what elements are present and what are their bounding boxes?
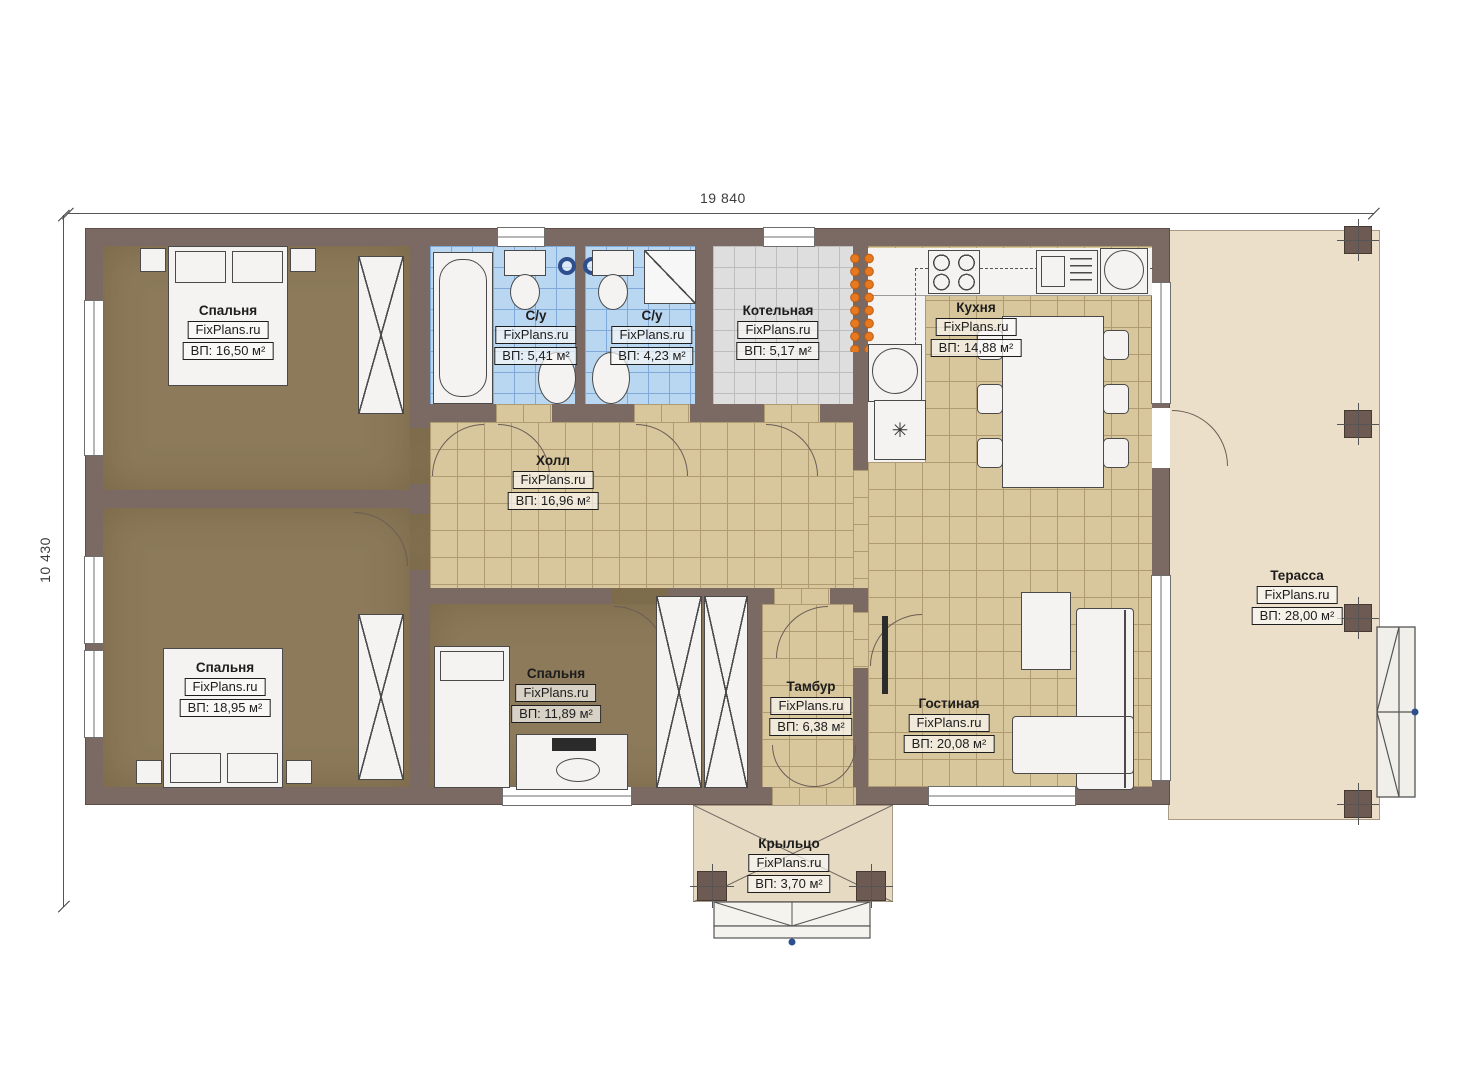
- room-label-porch: Крыльцо FixPlans.ru ВП: 3,70 м²: [747, 836, 830, 893]
- room-name: Тамбур: [769, 679, 852, 694]
- door-opening: [634, 404, 690, 422]
- toilet-tank: [504, 250, 546, 276]
- room-area: ВП: 20,08 м²: [904, 735, 995, 753]
- room-name: Крыльцо: [747, 836, 830, 851]
- window: [84, 556, 104, 644]
- chair: [977, 384, 1003, 414]
- room-label-bedroom2: Спальня FixPlans.ru ВП: 18,95 м²: [180, 660, 271, 717]
- room-name: С/у: [610, 308, 693, 323]
- watermark-label: FixPlans.ru: [908, 714, 989, 732]
- room-area: ВП: 5,41 м²: [494, 347, 577, 365]
- monitor: [552, 738, 596, 751]
- room-area: ВП: 6,38 м²: [769, 718, 852, 736]
- room-label-bedroom1: Спальня FixPlans.ru ВП: 16,50 м²: [183, 303, 274, 360]
- door-opening: [410, 514, 430, 570]
- nightstand: [286, 760, 312, 784]
- room-name: Кухня: [931, 300, 1022, 315]
- terrace-column: [1344, 226, 1372, 254]
- room-area: ВП: 4,23 м²: [610, 347, 693, 365]
- wardrobe: [358, 614, 404, 780]
- watermark-label: FixPlans.ru: [748, 854, 829, 872]
- heating-manifold-dots: [848, 252, 876, 352]
- chair: [1103, 330, 1129, 360]
- room-label-terrace: Терасса FixPlans.ru ВП: 28,00 м²: [1252, 568, 1343, 625]
- wardrobe: [704, 596, 748, 788]
- door-opening: [764, 404, 820, 422]
- porch-column: [856, 871, 886, 901]
- room-name: Котельная: [736, 303, 819, 318]
- room-name: Спальня: [511, 666, 601, 681]
- dimension-width-label: 19 840: [700, 190, 746, 206]
- window: [84, 300, 104, 456]
- room-label-bath1: С/у FixPlans.ru ВП: 5,41 м²: [494, 308, 577, 365]
- terrace-floor: [1168, 230, 1380, 820]
- fridge: ✳: [874, 400, 926, 460]
- passage-opening: [853, 470, 868, 588]
- room-label-bath2: С/у FixPlans.ru ВП: 4,23 м²: [610, 308, 693, 365]
- chair: [1103, 438, 1129, 468]
- door-opening: [853, 612, 868, 668]
- room-label-living: Гостиная FixPlans.ru ВП: 20,08 м²: [904, 696, 995, 753]
- pillow: [440, 651, 504, 681]
- sofa-backrest: [1124, 610, 1126, 788]
- watermark-label: FixPlans.ru: [611, 326, 692, 344]
- watermark-label: FixPlans.ru: [770, 697, 851, 715]
- round-hob: [1104, 250, 1144, 290]
- room-area: ВП: 11,89 м²: [511, 705, 601, 723]
- room-label-hall: Холл FixPlans.ru ВП: 16,96 м²: [508, 453, 599, 510]
- terrace-column: [1344, 410, 1372, 438]
- pillow: [227, 753, 278, 783]
- terrace-column: [1344, 604, 1372, 632]
- room-area: ВП: 5,17 м²: [736, 342, 819, 360]
- toilet-bowl: [510, 274, 540, 310]
- dimension-height-label: 10 430: [37, 537, 53, 583]
- tv: [882, 616, 888, 694]
- room-name: Холл: [508, 453, 599, 468]
- stove: [928, 250, 980, 294]
- porch-column: [697, 871, 727, 901]
- pillow: [170, 753, 221, 783]
- bathtub-basin: [439, 259, 487, 397]
- window: [763, 227, 815, 247]
- room-area: ВП: 3,70 м²: [747, 875, 830, 893]
- shower-cabin: [644, 250, 696, 304]
- sofa-seat: [1012, 716, 1134, 774]
- dimension-line-left: [63, 215, 64, 907]
- watermark-label: FixPlans.ru: [512, 471, 593, 489]
- door-opening: [774, 588, 830, 604]
- door-opening: [410, 428, 430, 484]
- wardrobe: [656, 596, 702, 788]
- nightstand: [140, 248, 166, 272]
- watermark-label: FixPlans.ru: [515, 684, 596, 702]
- coffee-table: [1021, 592, 1071, 670]
- floor-plan-canvas: ✳ 19 840 10: [0, 0, 1473, 1080]
- watermark-label: FixPlans.ru: [935, 318, 1016, 336]
- nightstand: [290, 248, 316, 272]
- water-heater: [872, 348, 918, 394]
- room-label-tambour: Тамбур FixPlans.ru ВП: 6,38 м²: [769, 679, 852, 736]
- desk-chair: [556, 758, 600, 782]
- door-opening: [496, 404, 552, 422]
- room-area: ВП: 16,96 м²: [508, 492, 599, 510]
- wall-lamp: [558, 257, 576, 275]
- room-name: Спальня: [183, 303, 274, 318]
- watermark-label: FixPlans.ru: [737, 321, 818, 339]
- chair: [1103, 384, 1129, 414]
- room-name: Гостиная: [904, 696, 995, 711]
- room-name: Терасса: [1252, 568, 1343, 583]
- room-name: Спальня: [180, 660, 271, 675]
- watermark-label: FixPlans.ru: [495, 326, 576, 344]
- watermark-label: FixPlans.ru: [1256, 586, 1337, 604]
- window: [1151, 282, 1171, 404]
- window: [928, 786, 1076, 806]
- door-opening: [1152, 408, 1170, 468]
- terrace-column: [1344, 790, 1372, 818]
- sink-bowl: [1041, 256, 1065, 287]
- room-label-boiler: Котельная FixPlans.ru ВП: 5,17 м²: [736, 303, 819, 360]
- wardrobe: [358, 256, 404, 414]
- terrace-sliding-window: [1151, 575, 1171, 781]
- fridge-symbol: ✳: [892, 418, 909, 443]
- terrace-stairs: [1376, 626, 1422, 802]
- watermark-label: FixPlans.ru: [184, 678, 265, 696]
- nightstand: [136, 760, 162, 784]
- watermark-label: FixPlans.ru: [187, 321, 268, 339]
- dimension-line-top: [68, 213, 1374, 214]
- toilet-bowl: [598, 274, 628, 310]
- room-area: ВП: 14,88 м²: [931, 339, 1022, 357]
- room-area: ВП: 18,95 м²: [180, 699, 271, 717]
- window: [497, 227, 545, 247]
- pillow: [175, 251, 226, 283]
- room-area: ВП: 28,00 м²: [1252, 607, 1343, 625]
- room-name: С/у: [494, 308, 577, 323]
- chair: [977, 438, 1003, 468]
- window: [84, 650, 104, 738]
- entrance-opening: [772, 787, 856, 805]
- room-label-bedroom3: Спальня FixPlans.ru ВП: 11,89 м²: [511, 666, 601, 723]
- pillow: [232, 251, 283, 283]
- toilet-tank: [592, 250, 634, 276]
- porch-steps: [712, 900, 872, 946]
- room-area: ВП: 16,50 м²: [183, 342, 274, 360]
- room-label-kitchen: Кухня FixPlans.ru ВП: 14,88 м²: [931, 300, 1022, 357]
- sink-drainer: [1070, 258, 1092, 286]
